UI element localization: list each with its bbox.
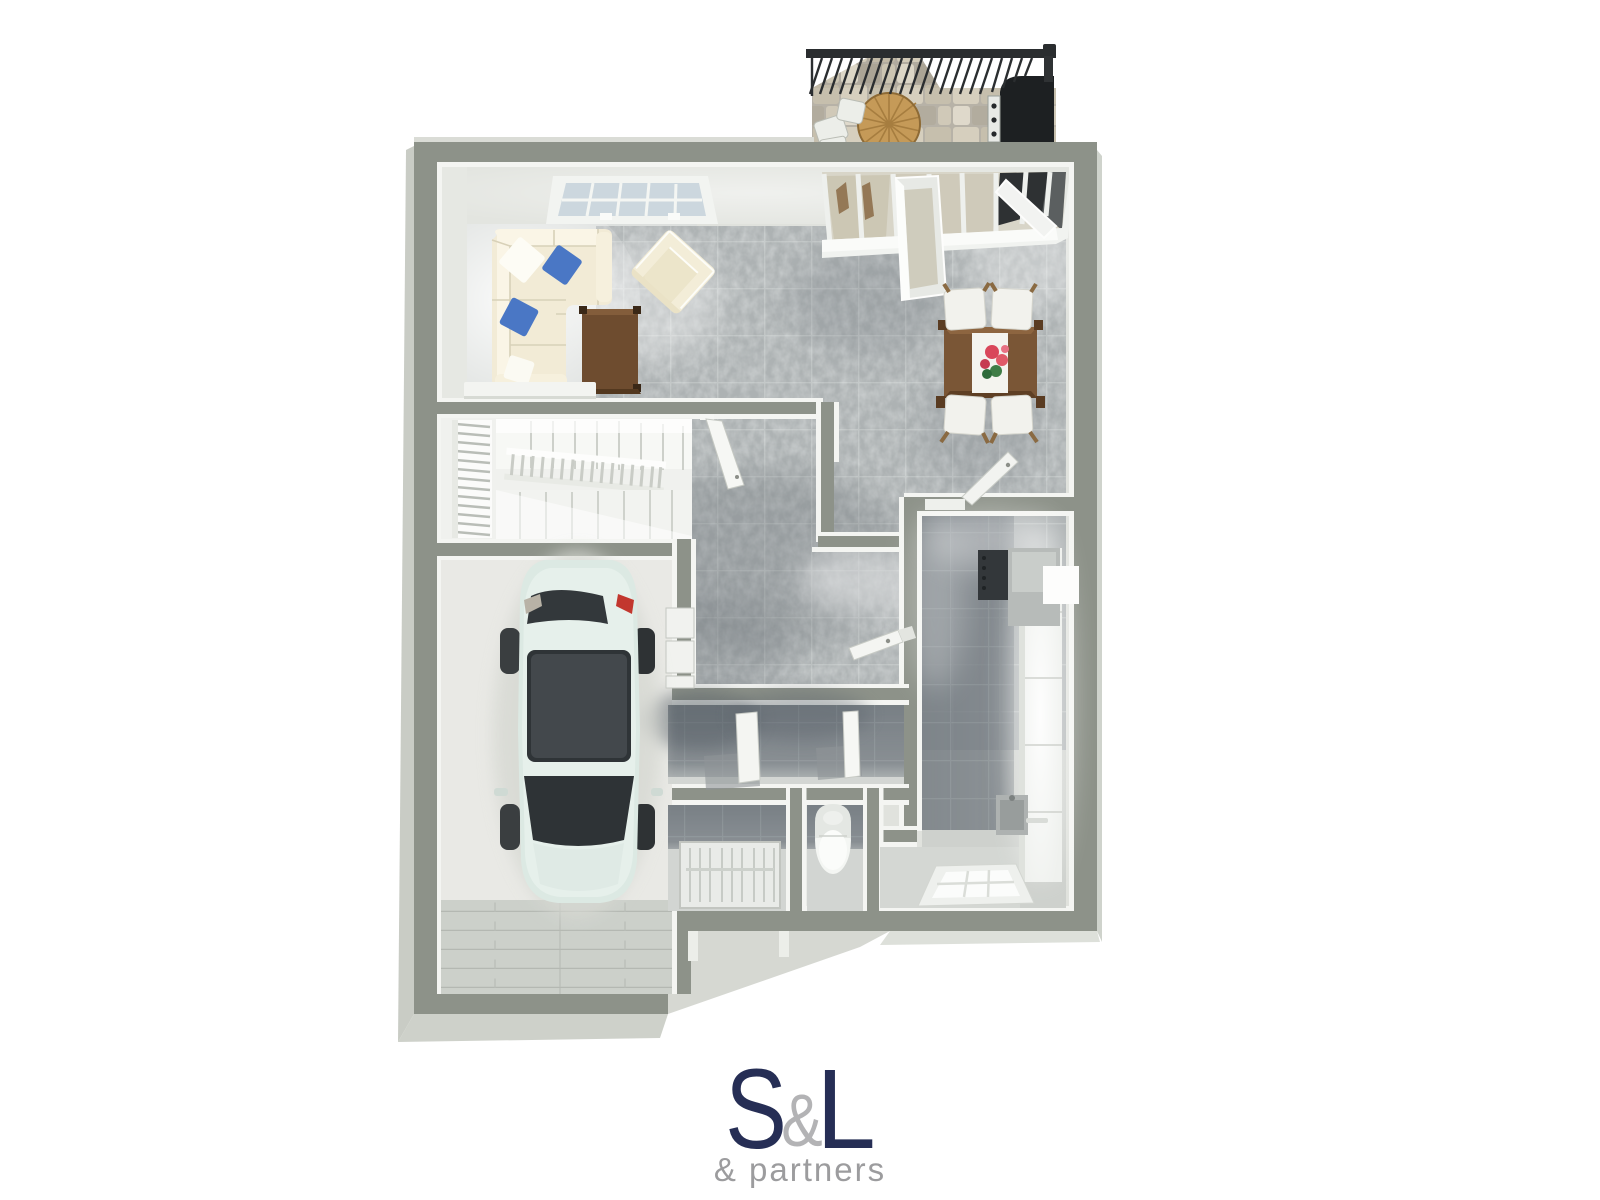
svg-text:& partners: & partners — [714, 1151, 886, 1188]
